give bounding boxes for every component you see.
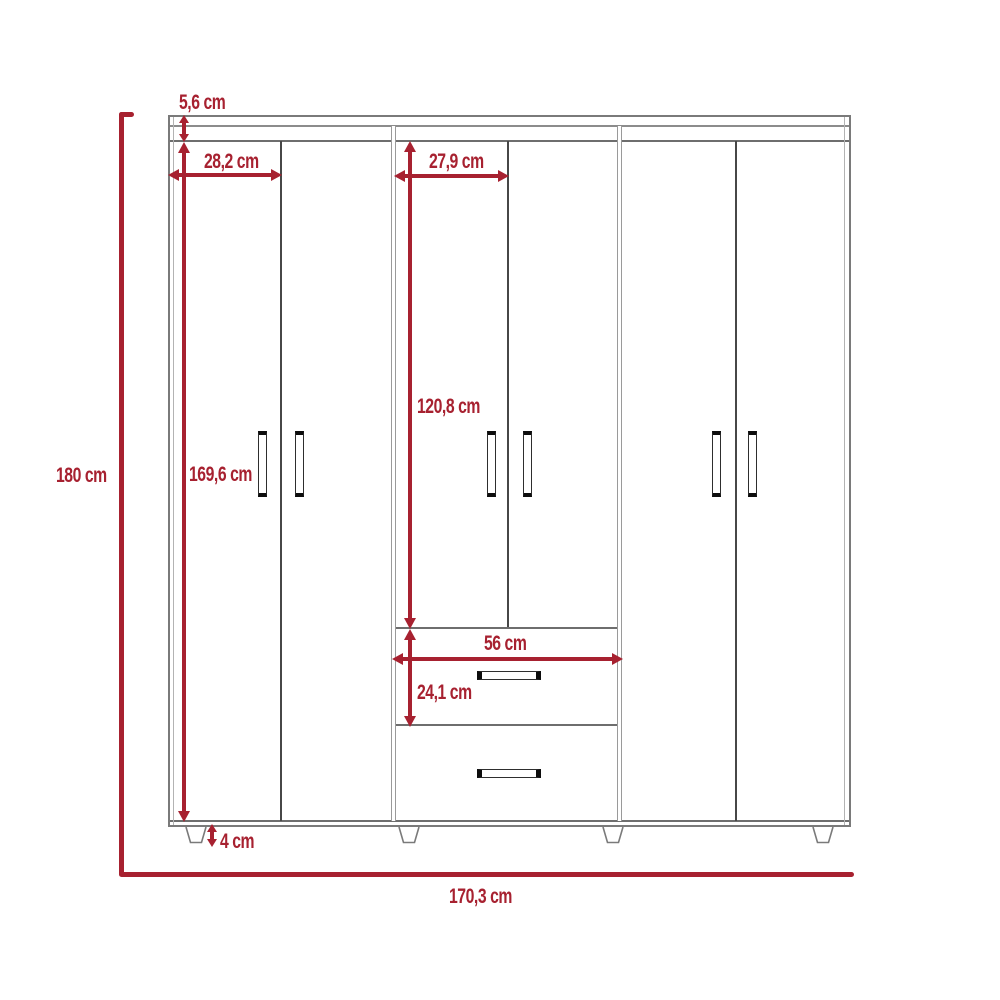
door-gap-right-section — [735, 141, 737, 821]
dim-label-center-door-height: 120,8 cm — [417, 396, 480, 417]
door-gap-center-section — [507, 141, 509, 628]
dim-label-drawer-height: 24,1 cm — [417, 682, 472, 703]
door-handle — [295, 431, 304, 497]
drawer-top-line — [396, 627, 617, 629]
dim-label-overall-height: 180 cm — [56, 465, 107, 486]
dim-label-leg-height: 4 cm — [220, 831, 254, 852]
overall-height-extent-line — [119, 112, 124, 876]
side-panel-inner-left — [173, 117, 174, 825]
dim-label-center-door-width: 27,9 cm — [429, 151, 484, 172]
foot — [396, 826, 422, 845]
dim-arrow-top-panel — [177, 115, 191, 142]
door-gap-left-section — [280, 141, 282, 821]
section-divider-left — [391, 126, 396, 821]
wardrobe-dimension-diagram: 5,6 cm 28,2 cm 27,9 cm 169,6 cm 120,8 cm… — [0, 0, 1000, 1000]
foot — [600, 826, 626, 845]
door-handle — [748, 431, 757, 497]
dim-label-side-door-width: 28,2 cm — [204, 151, 259, 172]
overall-width-extent-line — [119, 872, 854, 877]
drawer-handle — [477, 769, 541, 778]
dim-label-top-panel: 5,6 cm — [179, 92, 225, 113]
overall-height-top-tick — [119, 112, 134, 117]
dim-label-overall-width: 170,3 cm — [449, 886, 512, 907]
dim-arrow-drawer-height — [403, 629, 417, 727]
door-top-line — [170, 140, 849, 142]
dim-label-side-door-height: 169,6 cm — [189, 464, 252, 485]
door-handle — [258, 431, 267, 497]
foot — [810, 826, 836, 845]
drawer-handle — [477, 671, 541, 680]
drawer-divider-line — [396, 724, 617, 726]
door-handle — [523, 431, 532, 497]
plinth-line — [170, 820, 849, 822]
door-handle — [487, 431, 496, 497]
dim-arrow-leg-height — [205, 824, 219, 847]
top-panel-line — [170, 125, 849, 127]
dim-label-drawer-width: 56 cm — [484, 633, 526, 654]
section-divider-right — [617, 126, 622, 821]
side-panel-inner-right — [844, 117, 845, 825]
door-handle — [712, 431, 721, 497]
dim-arrow-center-door-height — [403, 141, 417, 629]
